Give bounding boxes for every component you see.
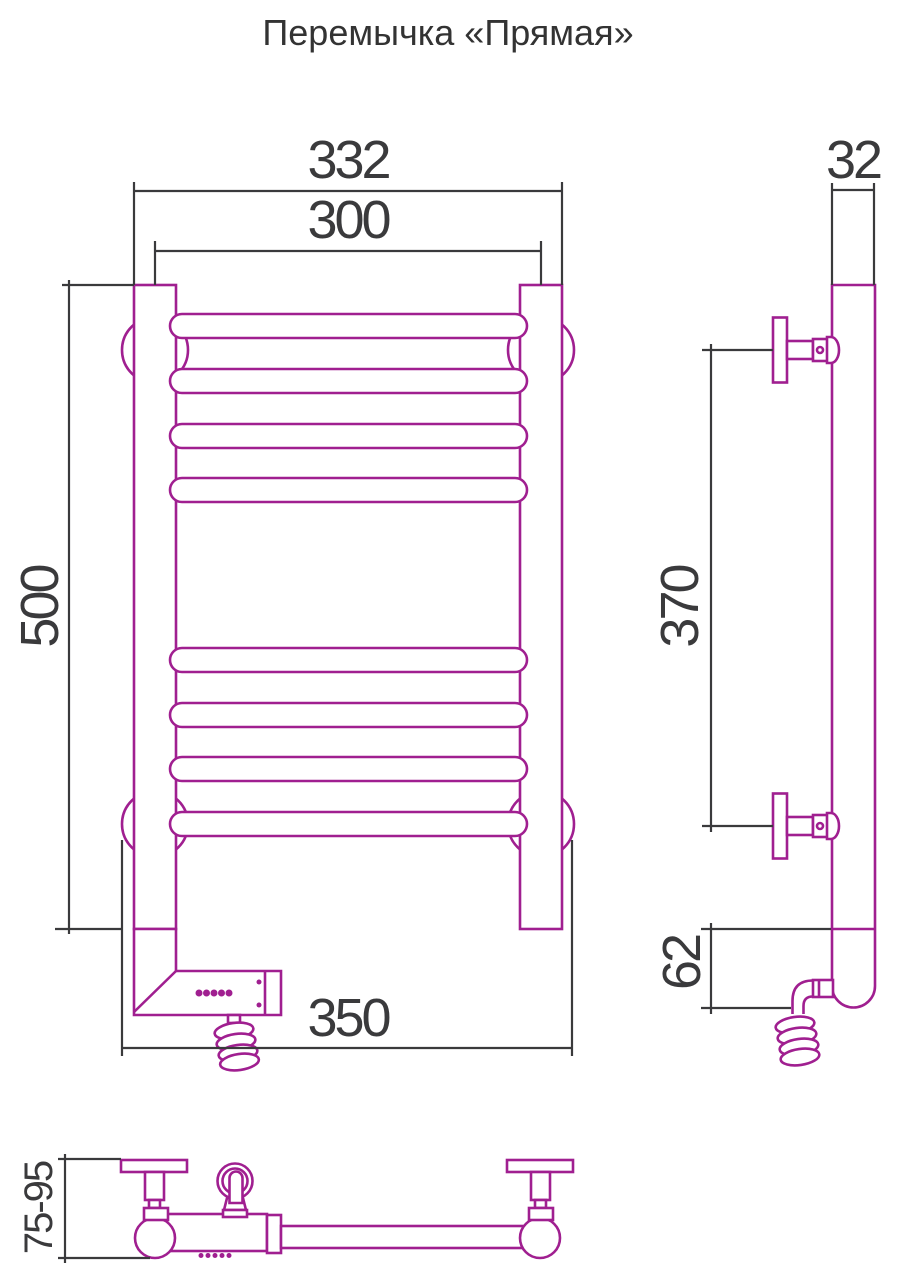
bracket-collar [144, 1208, 168, 1220]
gland-base [223, 1210, 247, 1217]
bracket-collar [827, 813, 839, 839]
led-indicators [196, 990, 233, 997]
side-view: 32 370 62 [650, 130, 881, 1068]
heater-unit [134, 929, 281, 1015]
led-dot [199, 1253, 204, 1258]
side-post [832, 285, 875, 1008]
rung [170, 648, 527, 672]
bracket-stem [531, 1172, 550, 1200]
rung [170, 478, 527, 502]
dim-label-32: 32 [826, 130, 881, 190]
plan-view: 75-95 [17, 1154, 573, 1263]
power-cable-coil-side [775, 980, 833, 1068]
bracket-collar [827, 337, 839, 363]
led-dot [196, 990, 203, 997]
dim-lines-370 [702, 344, 773, 832]
plan-led-indicators [199, 1253, 232, 1258]
led-dot [226, 990, 233, 997]
plan-left-post-end [135, 1218, 175, 1258]
led-dot [218, 990, 225, 997]
wall-bracket-bottom [773, 794, 839, 859]
plan-cable-gland [218, 1164, 253, 1218]
rung [170, 757, 527, 781]
bracket-plate [507, 1160, 573, 1172]
technical-drawing-page: Перемычка «Прямая» [0, 0, 897, 1280]
rung [170, 812, 527, 836]
rungs [170, 314, 527, 836]
led-dot [211, 990, 218, 997]
dim-label-332: 332 [307, 130, 389, 190]
dim-center-distance: 300 [155, 190, 541, 285]
bracket-stem [145, 1172, 164, 1200]
dim-height: 500 [10, 280, 134, 934]
led-dot [206, 1253, 211, 1258]
bracket-arm [787, 341, 813, 359]
screw-dot [257, 980, 262, 985]
power-cable-coil-front [214, 1015, 260, 1073]
dim-label-62: 62 [652, 935, 712, 990]
plan-wall-bracket-right [507, 1160, 573, 1220]
led-dot [213, 1253, 218, 1258]
rung [170, 369, 527, 393]
dim-bracket-spacing: 370 [650, 344, 773, 832]
bracket-flange [773, 318, 787, 383]
dim-lines-32 [832, 183, 874, 285]
wall-bracket-top [773, 318, 839, 383]
plan-heater-flange [267, 1215, 281, 1253]
dim-label-300: 300 [307, 190, 389, 250]
dim-lines-62 [701, 923, 831, 1014]
rung [170, 703, 527, 727]
dim-label-350: 350 [307, 988, 389, 1048]
cable-elbow [793, 981, 814, 1015]
drawing-title: Перемычка «Прямая» [262, 12, 633, 53]
rung [170, 314, 527, 338]
towel-rail-drawing: Перемычка «Прямая» [0, 0, 897, 1280]
front-view: 332 300 500 350 [10, 130, 574, 1073]
plan-tube [281, 1226, 527, 1248]
bracket-flange [773, 794, 787, 859]
bracket-collar [529, 1208, 553, 1220]
bracket-plate [121, 1160, 187, 1172]
led-dot [220, 1253, 225, 1258]
heater-box [134, 929, 281, 1015]
led-dot [203, 990, 210, 997]
cable-fitting [813, 980, 833, 997]
dim-tube-width: 32 [826, 130, 881, 285]
led-dot [227, 1253, 232, 1258]
dim-bottom-width: 350 [122, 840, 572, 1056]
dim-label-500: 500 [10, 565, 70, 647]
screw-dot [257, 1003, 262, 1008]
dim-label-75-95: 75-95 [17, 1161, 61, 1254]
plan-wall-bracket-left [121, 1160, 187, 1220]
rung [170, 424, 527, 448]
bracket-arm [787, 817, 813, 835]
dim-label-370: 370 [650, 565, 710, 647]
plan-right-post-end [520, 1218, 560, 1258]
gland-cable-exit [230, 1172, 243, 1204]
